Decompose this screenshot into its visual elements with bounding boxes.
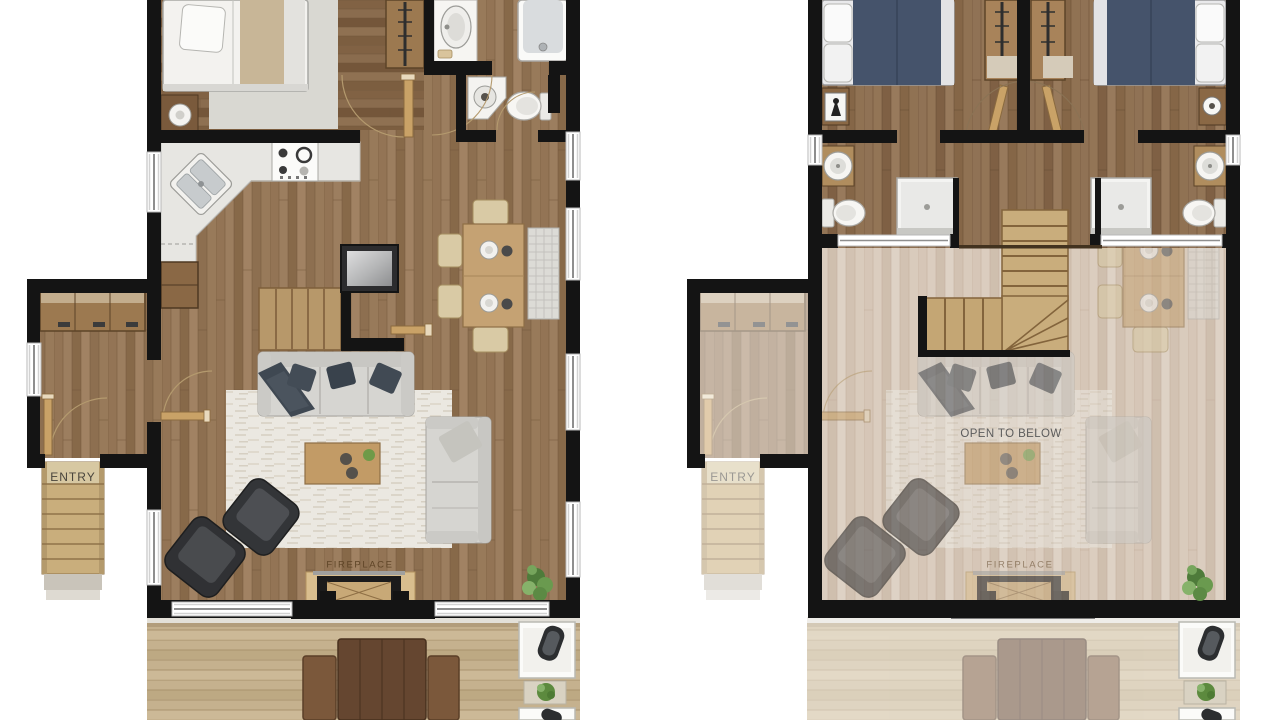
svg-text:OPEN TO BELOW: OPEN TO BELOW <box>960 428 1061 440</box>
